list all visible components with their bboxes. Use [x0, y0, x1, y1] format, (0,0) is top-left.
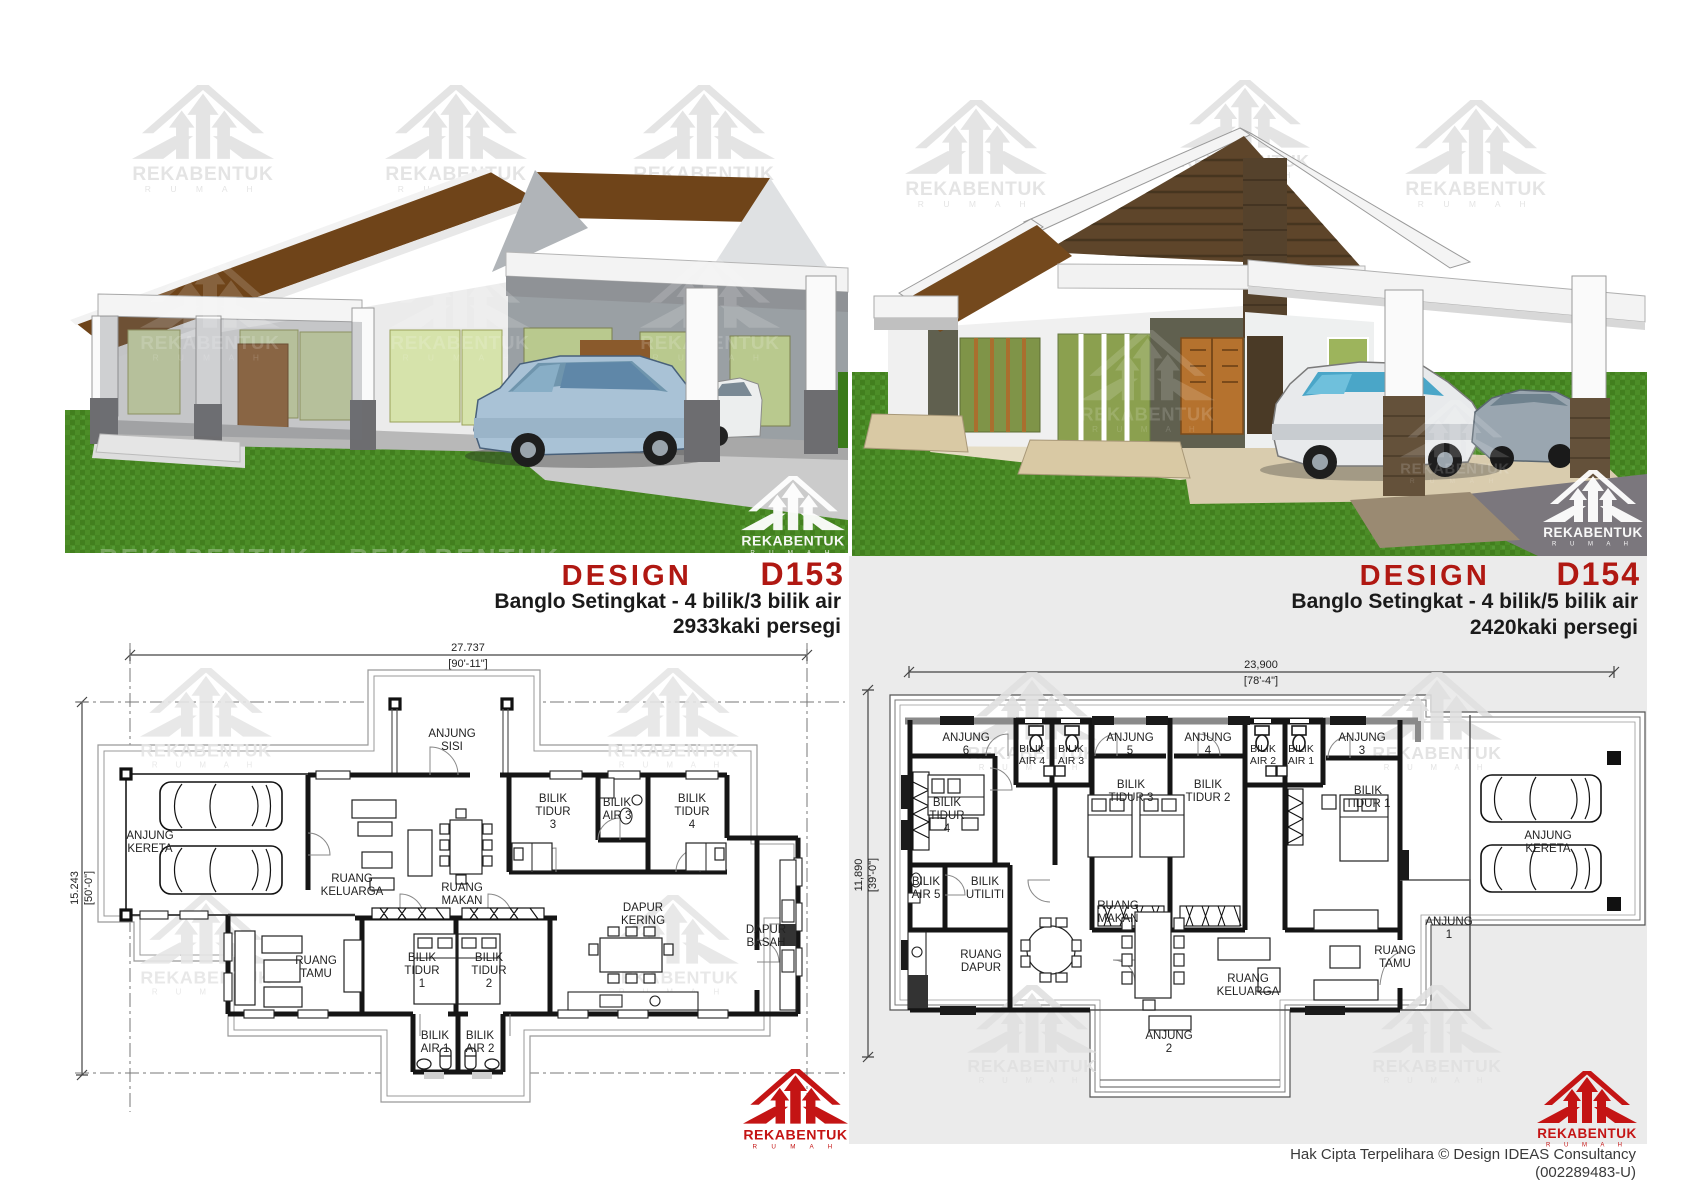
- svg-text:1: 1: [419, 978, 425, 990]
- svg-text:BILIK: BILIK: [539, 793, 567, 805]
- svg-text:[90'-11"]: [90'-11"]: [448, 658, 487, 670]
- svg-text:BILIK: BILIK: [1354, 785, 1382, 797]
- svg-text:RUANG: RUANG: [331, 873, 373, 885]
- svg-text:RUANG: RUANG: [1227, 973, 1269, 985]
- svg-text:RUANG: RUANG: [441, 882, 483, 894]
- svg-text:BILIK: BILIK: [912, 876, 940, 888]
- svg-text:[50'-0"]: [50'-0"]: [83, 871, 95, 905]
- svg-text:DESIGN: DESIGN: [1360, 560, 1490, 592]
- svg-text:BILIK: BILIK: [1250, 743, 1276, 755]
- svg-text:BASAH: BASAH: [747, 937, 786, 949]
- svg-text:D153: D153: [761, 556, 846, 592]
- svg-text:BILIK: BILIK: [1288, 743, 1314, 755]
- svg-text:BILIK: BILIK: [933, 797, 961, 809]
- svg-text:KERING: KERING: [621, 915, 665, 927]
- svg-text:RUANG: RUANG: [1097, 900, 1139, 912]
- svg-text:ANJUNG: ANJUNG: [1524, 830, 1571, 842]
- svg-text:AIR 4: AIR 4: [1019, 755, 1045, 767]
- svg-text:MAKAN: MAKAN: [442, 895, 483, 907]
- svg-text:[78'-4"]: [78'-4"]: [1244, 675, 1278, 687]
- svg-text:AIR 5: AIR 5: [912, 889, 941, 901]
- svg-text:ANJUNG: ANJUNG: [1184, 732, 1231, 744]
- svg-text:KERETA: KERETA: [1525, 843, 1570, 855]
- svg-text:4: 4: [1205, 745, 1212, 757]
- svg-text:TIDUR: TIDUR: [674, 806, 709, 818]
- svg-text:DESIGN: DESIGN: [562, 560, 692, 592]
- svg-text:Banglo Setingkat - 4 bilik/3 b: Banglo Setingkat - 4 bilik/3 bilik air: [494, 590, 841, 613]
- svg-text:3: 3: [550, 819, 556, 831]
- svg-text:[39'-0"]: [39'-0"]: [867, 858, 879, 892]
- svg-text:BILIK: BILIK: [421, 1030, 449, 1042]
- svg-text:KELUARGA: KELUARGA: [321, 886, 384, 898]
- svg-text:MAKAN: MAKAN: [1098, 913, 1139, 925]
- svg-text:3: 3: [1359, 745, 1365, 757]
- svg-text:1: 1: [1446, 929, 1452, 941]
- svg-text:27.737: 27.737: [451, 642, 485, 654]
- svg-text:TAMU: TAMU: [300, 968, 332, 980]
- svg-text:BILIK: BILIK: [466, 1030, 494, 1042]
- svg-text:KERETA: KERETA: [127, 843, 172, 855]
- svg-text:ANJUNG: ANJUNG: [428, 728, 475, 740]
- svg-text:2: 2: [486, 978, 492, 990]
- svg-text:BILIK: BILIK: [1194, 779, 1222, 791]
- svg-text:REKABENTUK: REKABENTUK: [349, 543, 561, 573]
- svg-text:AIR 1: AIR 1: [1288, 755, 1314, 767]
- svg-text:DAPUR: DAPUR: [623, 902, 663, 914]
- svg-text:BILIK: BILIK: [408, 952, 436, 964]
- svg-text:ANJUNG: ANJUNG: [1338, 732, 1385, 744]
- svg-text:BILIK: BILIK: [1058, 743, 1084, 755]
- svg-text:2: 2: [1166, 1043, 1172, 1055]
- svg-text:ANJUNG: ANJUNG: [1106, 732, 1153, 744]
- svg-text:2933kaki persegi: 2933kaki persegi: [673, 615, 841, 638]
- svg-text:11,890: 11,890: [853, 859, 865, 892]
- svg-text:RUANG: RUANG: [960, 949, 1002, 961]
- svg-text:TIDUR 2: TIDUR 2: [1186, 792, 1231, 804]
- svg-text:REKABENTUK: REKABENTUK: [99, 543, 311, 573]
- svg-text:RUANG: RUANG: [295, 955, 337, 967]
- svg-text:TIDUR: TIDUR: [404, 965, 439, 977]
- svg-text:6: 6: [963, 745, 969, 757]
- svg-text:2420kaki persegi: 2420kaki persegi: [1470, 616, 1638, 639]
- svg-text:BILIK: BILIK: [678, 793, 706, 805]
- svg-text:TIDUR 1: TIDUR 1: [1346, 798, 1391, 810]
- svg-text:AIR 3: AIR 3: [1058, 755, 1084, 767]
- svg-text:BILIK: BILIK: [1117, 779, 1145, 791]
- svg-text:BILIK: BILIK: [971, 876, 999, 888]
- svg-text:AIR 2: AIR 2: [1250, 755, 1276, 767]
- svg-text:UTILITI: UTILITI: [966, 889, 1004, 901]
- svg-text:TIDUR: TIDUR: [535, 806, 570, 818]
- svg-text:23,900: 23,900: [1244, 659, 1278, 671]
- svg-text:RUANG: RUANG: [1374, 945, 1416, 957]
- svg-text:BILIK: BILIK: [603, 797, 631, 809]
- svg-text:SISI: SISI: [441, 741, 463, 753]
- svg-text:Banglo Setingkat - 4 bilik/5 b: Banglo Setingkat - 4 bilik/5 bilik air: [1291, 590, 1638, 613]
- svg-text:4: 4: [689, 819, 696, 831]
- svg-text:AIR 1: AIR 1: [421, 1043, 450, 1055]
- svg-text:5: 5: [1127, 745, 1133, 757]
- svg-text:4: 4: [944, 823, 951, 835]
- svg-text:ANJUNG: ANJUNG: [1145, 1030, 1192, 1042]
- svg-text:BILIK: BILIK: [1019, 743, 1045, 755]
- svg-text:D154: D154: [1557, 556, 1642, 592]
- svg-text:TIDUR: TIDUR: [929, 810, 964, 822]
- svg-text:DAPUR: DAPUR: [746, 924, 786, 936]
- svg-text:KELUARGA: KELUARGA: [1217, 986, 1280, 998]
- svg-text:TIDUR 3: TIDUR 3: [1109, 792, 1154, 804]
- svg-text:BILIK: BILIK: [475, 952, 503, 964]
- svg-text:AIR 2: AIR 2: [466, 1043, 495, 1055]
- svg-text:ANJUNG: ANJUNG: [126, 830, 173, 842]
- svg-text:TIDUR: TIDUR: [471, 965, 506, 977]
- svg-text:Hak Cipta Terpelihara © Desig: Hak Cipta Terpelihara © Design IDEAS Con…: [1290, 1146, 1636, 1163]
- svg-text:DAPUR: DAPUR: [961, 962, 1001, 974]
- svg-text:ANJUNG: ANJUNG: [942, 732, 989, 744]
- svg-text:ANJUNG: ANJUNG: [1425, 916, 1472, 928]
- svg-text:TAMU: TAMU: [1379, 958, 1411, 970]
- svg-text:AIR 3: AIR 3: [603, 810, 632, 822]
- svg-text:(002289483-U): (002289483-U): [1535, 1164, 1636, 1181]
- svg-text:15.243: 15.243: [69, 871, 81, 905]
